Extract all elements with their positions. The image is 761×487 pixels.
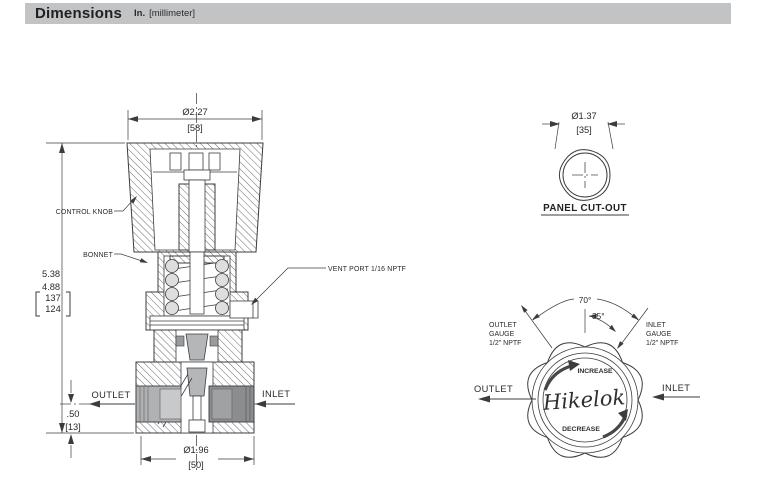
- angle-35-label: 35°: [592, 311, 605, 321]
- bonnet-label: BONNET: [83, 252, 114, 259]
- top-inlet-label: INLET: [662, 383, 690, 393]
- inlet-gauge-l2: GAUGE: [646, 331, 672, 338]
- control-knob-label: CONTROL KNOB: [56, 209, 113, 216]
- front-inlet: INLET: [255, 389, 295, 408]
- inlet-gauge-l3: 1/2" NPTF: [646, 340, 678, 347]
- dim-height-in-max: 5.38: [42, 269, 60, 279]
- technical-drawing: Ø2.27 [58] 5.38 4.88 137 124: [0, 0, 761, 487]
- dim-body-dia-in: Ø1.96: [183, 445, 208, 455]
- outlet-gauge-l1: OUTLET: [489, 322, 517, 329]
- knob-rib: [209, 153, 220, 170]
- dim-knob-diameter: Ø2.27 [58]: [128, 107, 262, 140]
- vent-port-drill: [230, 301, 253, 318]
- dim-height-in-min: 4.88: [42, 282, 60, 292]
- front-inlet-label: INLET: [262, 389, 290, 399]
- stem-cap: [184, 170, 210, 180]
- front-outlet-label: OUTLET: [91, 390, 130, 400]
- dimensions-page: Dimensions In. [millimeter]: [0, 0, 761, 487]
- front-section-view: Ø2.27 [58] 5.38 4.88 137 124: [36, 93, 406, 470]
- panel-dia-mm: [35]: [576, 125, 592, 135]
- callout-control-knob: CONTROL KNOB: [56, 196, 137, 216]
- top-view: Hikelok INCREASE DECREASE 70° 35: [474, 295, 700, 457]
- cutout-circle: [563, 153, 607, 197]
- dim-port-height: .50 [13]: [65, 380, 81, 458]
- panel-dia-in: Ø1.37: [571, 111, 596, 121]
- spring-coil: [216, 302, 229, 315]
- stem-upper: [189, 180, 205, 252]
- spring-coil: [216, 260, 229, 273]
- vent-port-label: VENT PORT 1/16 NPTF: [328, 266, 406, 273]
- dim-knob-dia-in: Ø2.27: [182, 107, 207, 117]
- knob-rib: [189, 153, 203, 170]
- spring-coil: [216, 274, 229, 287]
- spring-coil: [166, 260, 179, 273]
- knob-rib: [170, 153, 181, 170]
- inlet-gauge-line: [619, 308, 648, 347]
- spring-coil: [166, 274, 179, 287]
- outlet-gauge-l3: 1/2" NPTF: [489, 340, 521, 347]
- stem-end-cap: [189, 420, 205, 432]
- brand-logo: Hikelok: [541, 385, 626, 415]
- inlet-gauge-l1: INLET: [646, 322, 667, 329]
- panel-cutout-caption: PANEL CUT-OUT: [543, 203, 627, 214]
- dim-height-mm-min: 124: [45, 304, 61, 314]
- dim-port-height-mm: [13]: [65, 422, 81, 432]
- dim-body-diameter: Ø1.96 [50]: [141, 436, 254, 470]
- dim-height-mm-max: 137: [45, 293, 61, 303]
- increase-label: INCREASE: [577, 368, 613, 375]
- panel-cutout-view: Ø1.37 [35] PANEL CUT-OUT: [541, 111, 629, 215]
- callout-vent-port: VENT PORT 1/16 NPTF: [251, 266, 406, 305]
- outlet-gauge-l2: GAUGE: [489, 331, 515, 338]
- dim-port-height-in: .50: [67, 409, 80, 419]
- top-outlet: OUTLET: [474, 384, 536, 403]
- spring-coil: [216, 288, 229, 301]
- dim-body-dia-mm: [50]: [188, 460, 204, 470]
- stem-tip: [193, 396, 201, 420]
- outlet-gauge-label: OUTLET GAUGE 1/2" NPTF: [489, 322, 521, 347]
- top-outlet-label: OUTLET: [474, 384, 513, 394]
- front-outlet: OUTLET: [89, 390, 135, 408]
- cutout-outline: [559, 150, 610, 201]
- stem-lower: [190, 252, 204, 314]
- dim-knob-dia-mm: [58]: [187, 123, 203, 133]
- spring-coil: [166, 288, 179, 301]
- spring-coil: [166, 302, 179, 315]
- top-inlet: INLET: [652, 383, 700, 401]
- decrease-label: DECREASE: [562, 426, 600, 433]
- callout-bonnet: BONNET: [83, 252, 148, 263]
- poppet-upper: [186, 334, 208, 360]
- angle-70-label: 70°: [579, 295, 592, 305]
- inlet-gauge-label: INLET GAUGE 1/2" NPTF: [646, 322, 678, 347]
